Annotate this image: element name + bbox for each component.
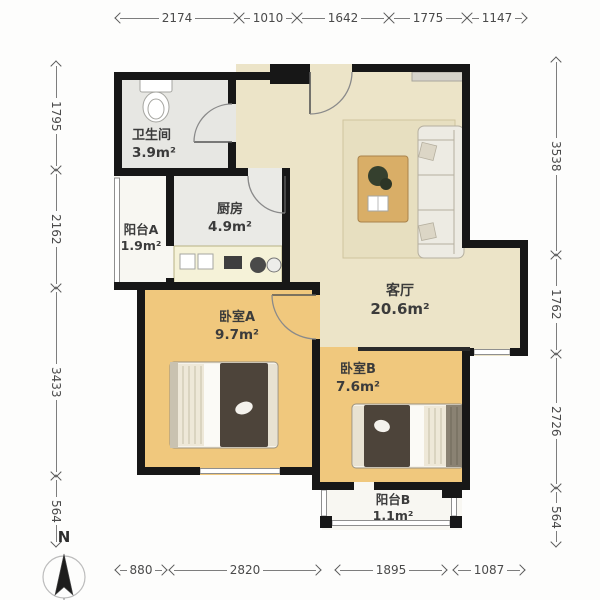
stove: [224, 256, 242, 269]
room-area: 7.6m²: [315, 379, 401, 397]
bed-a: [170, 362, 278, 448]
room-name: 阳台A: [112, 222, 170, 238]
room-area: 3.9m²: [132, 145, 202, 163]
arrow-up-icon: [550, 56, 561, 67]
floorplan: 卫生间 3.9m² 阳台A 1.9m² 厨房 4.9m² 客厅 20.6m² 卧…: [112, 56, 532, 548]
dim-top-2: 1010: [240, 10, 296, 26]
dim-value: 3538: [549, 138, 563, 175]
room-area: 1.9m²: [112, 238, 170, 254]
arrow-left-icon: [114, 564, 125, 575]
dim-value: 2174: [159, 11, 196, 25]
dim-value: 1762: [549, 286, 563, 323]
room-label-balcony-a: 阳台A 1.9m²: [112, 222, 170, 255]
room-name: 卧室B: [315, 362, 401, 379]
arrow-left-icon: [334, 564, 345, 575]
arrow-left-icon: [388, 12, 399, 23]
arrow-right-icon: [436, 564, 447, 575]
dim-right-4: 564: [548, 488, 564, 546]
room-label-kitchen: 厨房 4.9m²: [202, 202, 258, 236]
dim-value: 880: [127, 563, 156, 577]
dim-left-1: 1795: [48, 62, 64, 170]
dim-top-1: 2174: [116, 10, 238, 26]
dim-value: 2162: [49, 211, 63, 248]
room-label-bedroom-b: 卧室B 7.6m²: [315, 362, 401, 396]
arrow-left-icon: [168, 564, 179, 575]
dim-top-3: 1642: [298, 10, 388, 26]
room-area: 20.6m²: [357, 300, 443, 320]
arrow-up-icon: [550, 253, 561, 264]
arrow-down-icon: [550, 536, 561, 547]
room-area: 1.1m²: [350, 508, 436, 524]
room-name: 厨房: [202, 202, 258, 219]
toilet: [140, 78, 172, 122]
arrow-up-icon: [50, 168, 61, 179]
tv-shelf: [412, 72, 464, 81]
dim-value: 2726: [549, 403, 563, 440]
arrow-left-icon: [296, 12, 307, 23]
dim-value: 564: [549, 503, 563, 532]
bed-b: [352, 404, 464, 468]
window-balcony-b-left: [322, 490, 327, 516]
dim-left-3: 3433: [48, 288, 64, 476]
dim-value: 1087: [471, 563, 508, 577]
arrow-left-icon: [452, 564, 463, 575]
compass: N: [40, 528, 88, 600]
dim-top-5: 1147: [468, 10, 526, 26]
dim-value: 2820: [227, 563, 264, 577]
dim-right-3: 2726: [548, 354, 564, 488]
dim-bottom-4: 1087: [454, 562, 524, 578]
dim-value: 1147: [479, 11, 516, 25]
window-bedroom-a: [200, 469, 280, 474]
dim-value: 1795: [49, 98, 63, 135]
arrow-right-icon: [310, 564, 321, 575]
room-name: 卧室A: [194, 310, 280, 327]
livingroom-bay-floor: [464, 240, 528, 356]
dim-left-2: 2162: [48, 170, 64, 288]
room-label-bedroom-a: 卧室A 9.7m²: [194, 310, 280, 344]
kitchen-counter: [174, 246, 282, 284]
dim-right-1: 3538: [548, 58, 564, 255]
room-label-balcony-b: 阳台B 1.1m²: [350, 492, 436, 525]
room-area: 9.7m²: [194, 327, 280, 345]
arrow-up-icon: [550, 352, 561, 363]
burner: [250, 257, 266, 273]
room-label-bathroom: 卫生间 3.9m²: [132, 128, 202, 162]
arrow-up-icon: [550, 486, 561, 497]
room-area: 4.9m²: [202, 219, 258, 237]
window-bay: [474, 350, 510, 355]
sink-right: [198, 254, 213, 269]
dim-value: 1775: [410, 11, 447, 25]
sofa: [418, 126, 464, 258]
arrow-right-icon: [516, 12, 527, 23]
coffee-table: [358, 156, 408, 222]
dim-bottom-3: 1895: [336, 562, 446, 578]
compass-rose-icon: [40, 547, 88, 600]
arrow-right-icon: [156, 564, 167, 575]
room-label-living: 客厅 20.6m²: [357, 282, 443, 320]
dim-value: 564: [49, 497, 63, 526]
dim-bottom-2: 2820: [170, 562, 320, 578]
dim-value: 1642: [325, 11, 362, 25]
arrow-up-icon: [50, 286, 61, 297]
room-name: 卫生间: [132, 128, 202, 145]
dim-value: 1010: [250, 11, 287, 25]
arrow-right-icon: [514, 564, 525, 575]
room-name: 阳台B: [350, 492, 436, 508]
sink-left: [180, 254, 195, 269]
arrow-up-icon: [50, 60, 61, 71]
floorplan-page: 卫生间 3.9m² 阳台A 1.9m² 厨房 4.9m² 客厅 20.6m² 卧…: [0, 0, 600, 600]
dim-value: 1895: [373, 563, 410, 577]
arrow-left-icon: [114, 12, 125, 23]
arrow-left-icon: [466, 12, 477, 23]
compass-n-label: N: [40, 528, 88, 546]
dim-bottom-1: 880: [116, 562, 166, 578]
arrow-up-icon: [50, 474, 61, 485]
arrow-left-icon: [238, 12, 249, 23]
round-sink: [267, 258, 281, 272]
room-name: 客厅: [357, 282, 443, 300]
dim-top-4: 1775: [390, 10, 466, 26]
dim-value: 3433: [49, 364, 63, 401]
dim-right-2: 1762: [548, 255, 564, 354]
